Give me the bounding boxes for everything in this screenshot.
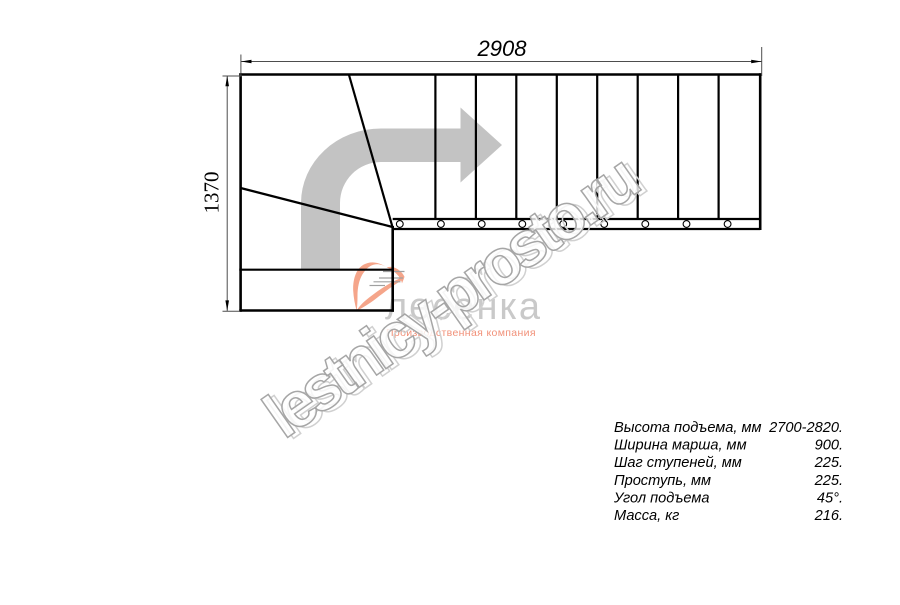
svg-text:2700-2820.: 2700-2820. [768,420,843,436]
svg-text:216.: 216. [814,508,843,524]
svg-text:2908: 2908 [477,36,528,61]
svg-text:1370: 1370 [200,172,224,214]
svg-text:Шаг ступеней, мм: Шаг ступеней, мм [614,455,742,471]
svg-text:225.: 225. [814,455,843,471]
svg-text:Масса, кг: Масса, кг [614,508,679,524]
svg-text:Высота подъема, мм: Высота подъема, мм [614,420,762,436]
svg-text:Проступь, мм: Проступь, мм [614,473,711,489]
svg-text:45°.: 45°. [817,490,843,506]
svg-text:Ширина марша, мм: Ширина марша, мм [614,438,747,454]
svg-text:225.: 225. [814,473,843,489]
svg-text:Угол подъема: Угол подъема [613,490,709,506]
svg-text:900.: 900. [815,438,843,454]
